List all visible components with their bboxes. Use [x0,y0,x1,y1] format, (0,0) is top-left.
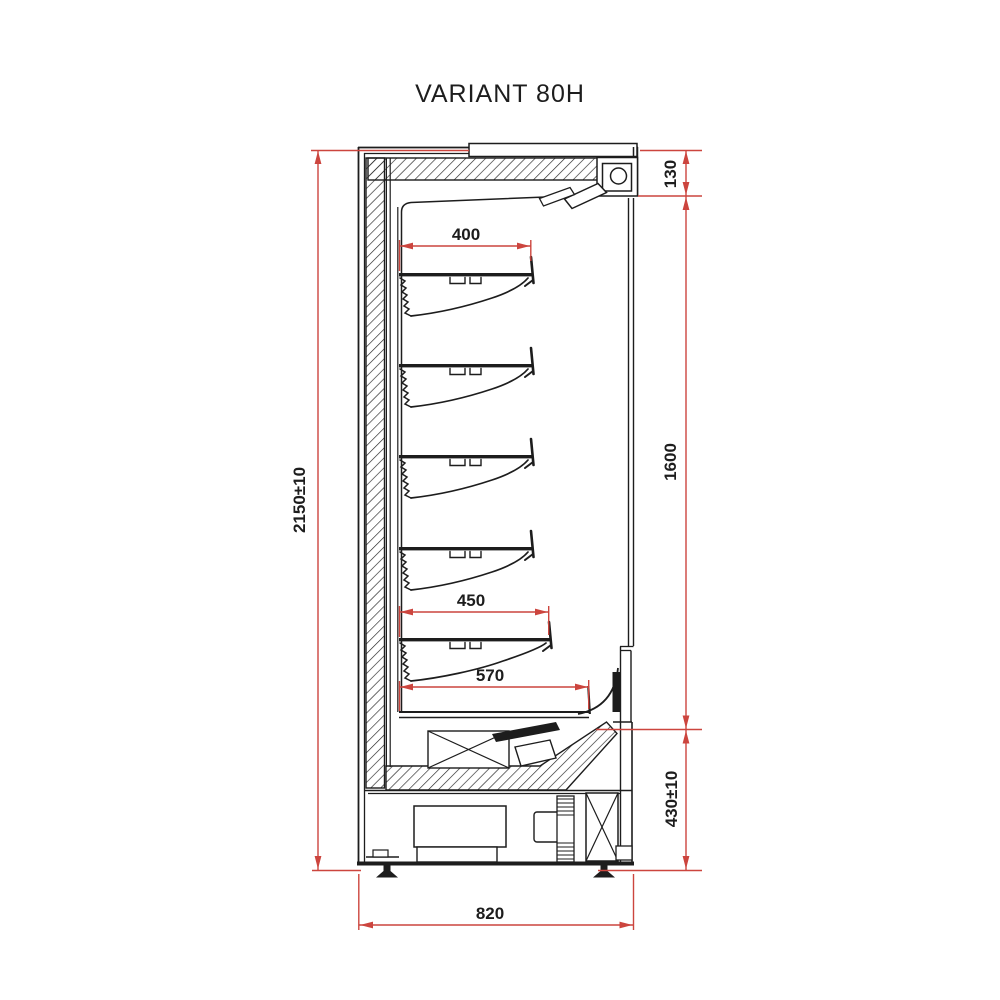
dim-label-shelf-450: 450 [457,591,485,610]
compressor [414,806,506,847]
insulation-hatch [366,158,617,790]
shelf-2 [399,348,534,407]
shelves [399,257,552,681]
fan-motor [534,812,560,842]
labels: VARIANT 80H 2150±10 130 1600 430±10 400 … [290,80,681,923]
dim-label-canopy-height: 130 [661,160,680,188]
leveling-foot-left [376,866,398,878]
drawing-title: VARIANT 80H [415,80,585,108]
dim-shelf-450 [399,606,549,637]
under-deck-components [428,722,560,768]
dim-right-chain [596,150,702,871]
top-panel [469,144,637,157]
shelf-4 [399,531,534,590]
drawing-page: VARIANT 80H 2150±10 130 1600 430±10 400 … [0,0,1000,1000]
lamp-icon [611,168,627,184]
technical-drawing: VARIANT 80H 2150±10 130 1600 430±10 400 … [0,0,1000,1000]
rear-duct-panel [402,196,584,713]
dim-label-shelf-400: 400 [452,225,480,244]
dim-label-base-height: 430±10 [662,771,681,828]
shelf-1 [399,257,534,316]
dim-label-overall-height: 2150±10 [290,467,309,533]
machine-compartment [357,791,634,878]
dim-label-base-shelf-570: 570 [476,666,504,685]
air-intake-curve [578,668,618,714]
dim-label-overall-depth: 820 [476,904,504,923]
leveling-foot-right [593,866,615,878]
intake-grille [613,672,621,712]
base-rail [357,862,634,866]
dim-shelf-400 [399,240,531,271]
shelf-3 [399,439,534,498]
front-glass [620,198,634,651]
dim-label-opening-height: 1600 [661,443,680,481]
base-deck [399,668,621,718]
